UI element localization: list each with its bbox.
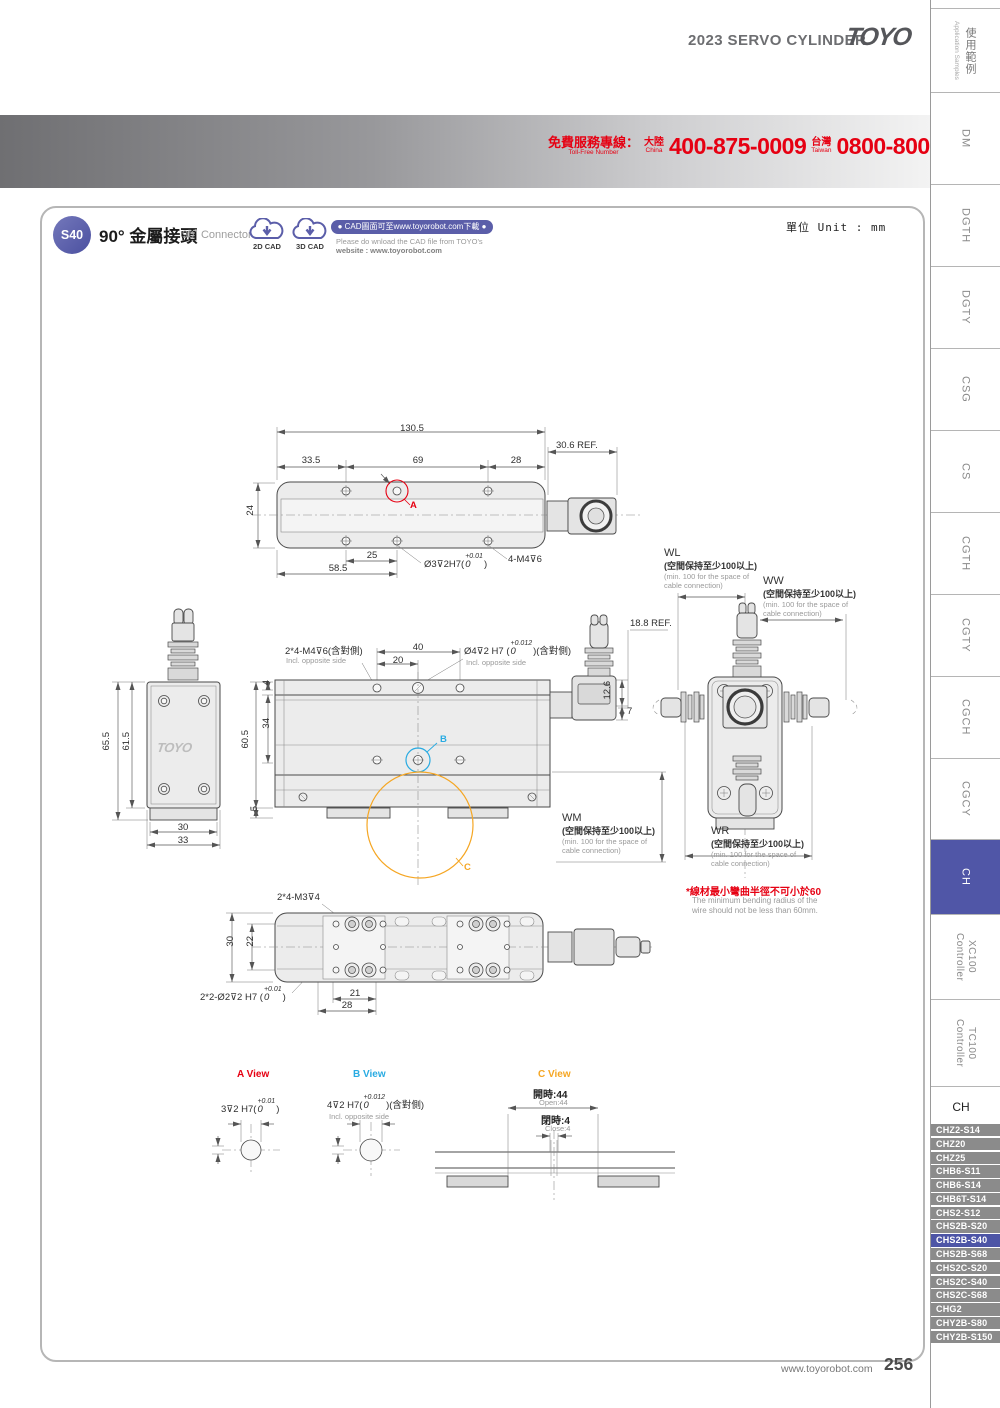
bend-radius-note-en: The minimum bending radius of the wire s… bbox=[692, 896, 834, 915]
model-item[interactable]: CHZ25 bbox=[931, 1152, 1000, 1164]
model-item[interactable]: CHG2 bbox=[931, 1303, 1000, 1315]
dim-4: 4 bbox=[261, 680, 272, 685]
space-note-wl: WL (空間保持至少100以上) (min. 100 for the space… bbox=[664, 547, 766, 590]
model-item[interactable]: CHY2B-S150 bbox=[931, 1331, 1000, 1343]
model-item[interactable]: CHB6-S11 bbox=[931, 1165, 1000, 1177]
space-note-wr: WR (空間保持至少100以上) (min. 100 for the space… bbox=[711, 825, 813, 868]
sidebar-tab-cgch[interactable]: CGCH bbox=[931, 677, 1000, 759]
dim-height: 24 bbox=[245, 505, 256, 516]
thread-callout: 4-M4⊽6 bbox=[508, 554, 542, 565]
front-hole-note-en: Incl. opposite side bbox=[466, 658, 526, 667]
sidebar-tab-tc100-controller[interactable]: ControllerTC100 bbox=[931, 1000, 1000, 1087]
model-item[interactable]: CHB6-S14 bbox=[931, 1179, 1000, 1191]
dim-b30: 30 bbox=[225, 936, 236, 947]
model-item[interactable]: CHS2B-S20 bbox=[931, 1220, 1000, 1232]
dowel-hole-callout: Ø3⊽2H7( +0.010 ) bbox=[424, 553, 487, 570]
sidebar-tab-ch-active[interactable]: CH bbox=[931, 840, 1000, 915]
front-thread-note: 2*4-M4⊽6(含對側) bbox=[285, 643, 363, 657]
dim-b22: 22 bbox=[245, 936, 256, 947]
drawing-layer bbox=[0, 0, 1000, 1408]
footer-page-number: 256 bbox=[884, 1354, 913, 1375]
dim-126: 12.6 bbox=[602, 681, 613, 700]
bottom-hole-callout: 2*2-Ø2⊽2 H7 ( +0.010 ) bbox=[200, 986, 286, 1003]
model-item[interactable]: CHS2C-S20 bbox=[931, 1262, 1000, 1274]
b-view-callout: 4⊽2 H7( +0.0120 )(含對側) bbox=[327, 1094, 424, 1111]
sidebar-tab-dm[interactable]: DM bbox=[931, 93, 1000, 185]
dim-base-w: 30 bbox=[170, 822, 196, 833]
sidebar-tab-xc100-controller[interactable]: ControllerXC100 bbox=[931, 915, 1000, 1000]
dim-length: 130.5 bbox=[392, 423, 432, 434]
model-item-active[interactable]: CHS2B-S40 bbox=[931, 1234, 1000, 1246]
dim-mid: 69 bbox=[402, 455, 434, 466]
bottom-view-drawing bbox=[226, 904, 652, 1015]
sidebar-tab-csg[interactable]: CSG bbox=[931, 349, 1000, 431]
sidebar-tab-cgth[interactable]: CGTH bbox=[931, 513, 1000, 595]
dim-hole-pitch: 25 bbox=[356, 550, 388, 561]
c-view-title: C View bbox=[538, 1069, 571, 1080]
model-item[interactable]: CHY2B-S80 bbox=[931, 1317, 1000, 1329]
model-list: CHZ2-S14 CHZ20 CHZ25 CHB6-S11 CHB6-S14 C… bbox=[931, 1124, 1000, 1345]
front-hole-callout: Ø4⊽2 H7 ( +0.0120 )(含對側) bbox=[464, 640, 571, 657]
a-view-title: A View bbox=[237, 1069, 269, 1080]
c-view-open-en: Open:44 bbox=[539, 1098, 568, 1107]
sidebar-tab-application-samples[interactable]: Application Samples 使用範例 bbox=[931, 8, 1000, 93]
dim-total-w: 33 bbox=[170, 835, 196, 846]
bottom-thread-note: 2*4-M3⊽4 bbox=[277, 892, 320, 903]
model-item[interactable]: CHZ20 bbox=[931, 1138, 1000, 1150]
view-marker-b: B bbox=[440, 734, 447, 745]
dim-34: 34 bbox=[261, 718, 272, 729]
footer-site-url: www.toyorobot.com bbox=[781, 1363, 873, 1375]
dim-pitch20: 20 bbox=[384, 655, 412, 666]
dim-front-ref: 18.8 REF. bbox=[630, 618, 672, 629]
side-view-drawing bbox=[112, 609, 220, 849]
view-marker-c: C bbox=[464, 862, 471, 873]
a-view-callout: 3⊽2 H7( +0.010 ) bbox=[221, 1098, 279, 1115]
sidebar-tab-cgcy[interactable]: CGCY bbox=[931, 759, 1000, 840]
dim-7: 7 bbox=[627, 706, 632, 717]
dim-5: 5 bbox=[249, 806, 260, 811]
model-item[interactable]: CHS2C-S68 bbox=[931, 1289, 1000, 1301]
b-view-incl-en: Incl. opposite side bbox=[329, 1112, 389, 1121]
sidebar-tab-dgty[interactable]: DGTY bbox=[931, 267, 1000, 349]
front-thread-note-en: Incl. opposite side bbox=[286, 656, 346, 665]
b-view-title: B View bbox=[353, 1069, 386, 1080]
application-samples-en: Application Samples bbox=[953, 21, 960, 80]
dim-total-h: 65.5 bbox=[101, 732, 112, 751]
a-view-drawing bbox=[212, 1120, 280, 1174]
b-view-drawing bbox=[332, 1120, 400, 1176]
toyo-logo-engraving: TOYO bbox=[156, 740, 193, 755]
space-note-ww: WW (空間保持至少100以上) (min. 100 for the space… bbox=[763, 575, 865, 618]
application-samples-zh: 使用範例 bbox=[962, 27, 978, 75]
dim-ref: 30.6 REF. bbox=[556, 440, 598, 451]
c-view-close-en: Close:4 bbox=[545, 1124, 570, 1133]
dim-body-h: 61.5 bbox=[121, 732, 132, 751]
model-item[interactable]: CHS2C-S40 bbox=[931, 1276, 1000, 1288]
dim-b21: 21 bbox=[342, 988, 368, 999]
dim-right: 28 bbox=[500, 455, 532, 466]
model-item[interactable]: CHZ2-S14 bbox=[931, 1124, 1000, 1136]
dim-b28: 28 bbox=[334, 1000, 360, 1011]
model-item[interactable]: CHS2B-S68 bbox=[931, 1248, 1000, 1260]
dim-605: 60.5 bbox=[240, 730, 251, 749]
dim-left: 33.5 bbox=[295, 455, 327, 466]
sidebar-tab-cs[interactable]: CS bbox=[931, 431, 1000, 513]
sidebar-tab-cgty[interactable]: CGTY bbox=[931, 595, 1000, 677]
view-marker-a: A bbox=[410, 500, 417, 511]
model-list-header: CH bbox=[930, 1100, 992, 1114]
model-item[interactable]: CHB6T-S14 bbox=[931, 1193, 1000, 1205]
model-item[interactable]: CHS2-S12 bbox=[931, 1207, 1000, 1219]
dim-hole-from-end: 58.5 bbox=[320, 563, 356, 574]
sidebar-tab-dgth[interactable]: DGTH bbox=[931, 185, 1000, 267]
dim-pitch40: 40 bbox=[404, 642, 432, 653]
space-note-wm: WM (空間保持至少100以上) (min. 100 for the space… bbox=[562, 812, 664, 855]
